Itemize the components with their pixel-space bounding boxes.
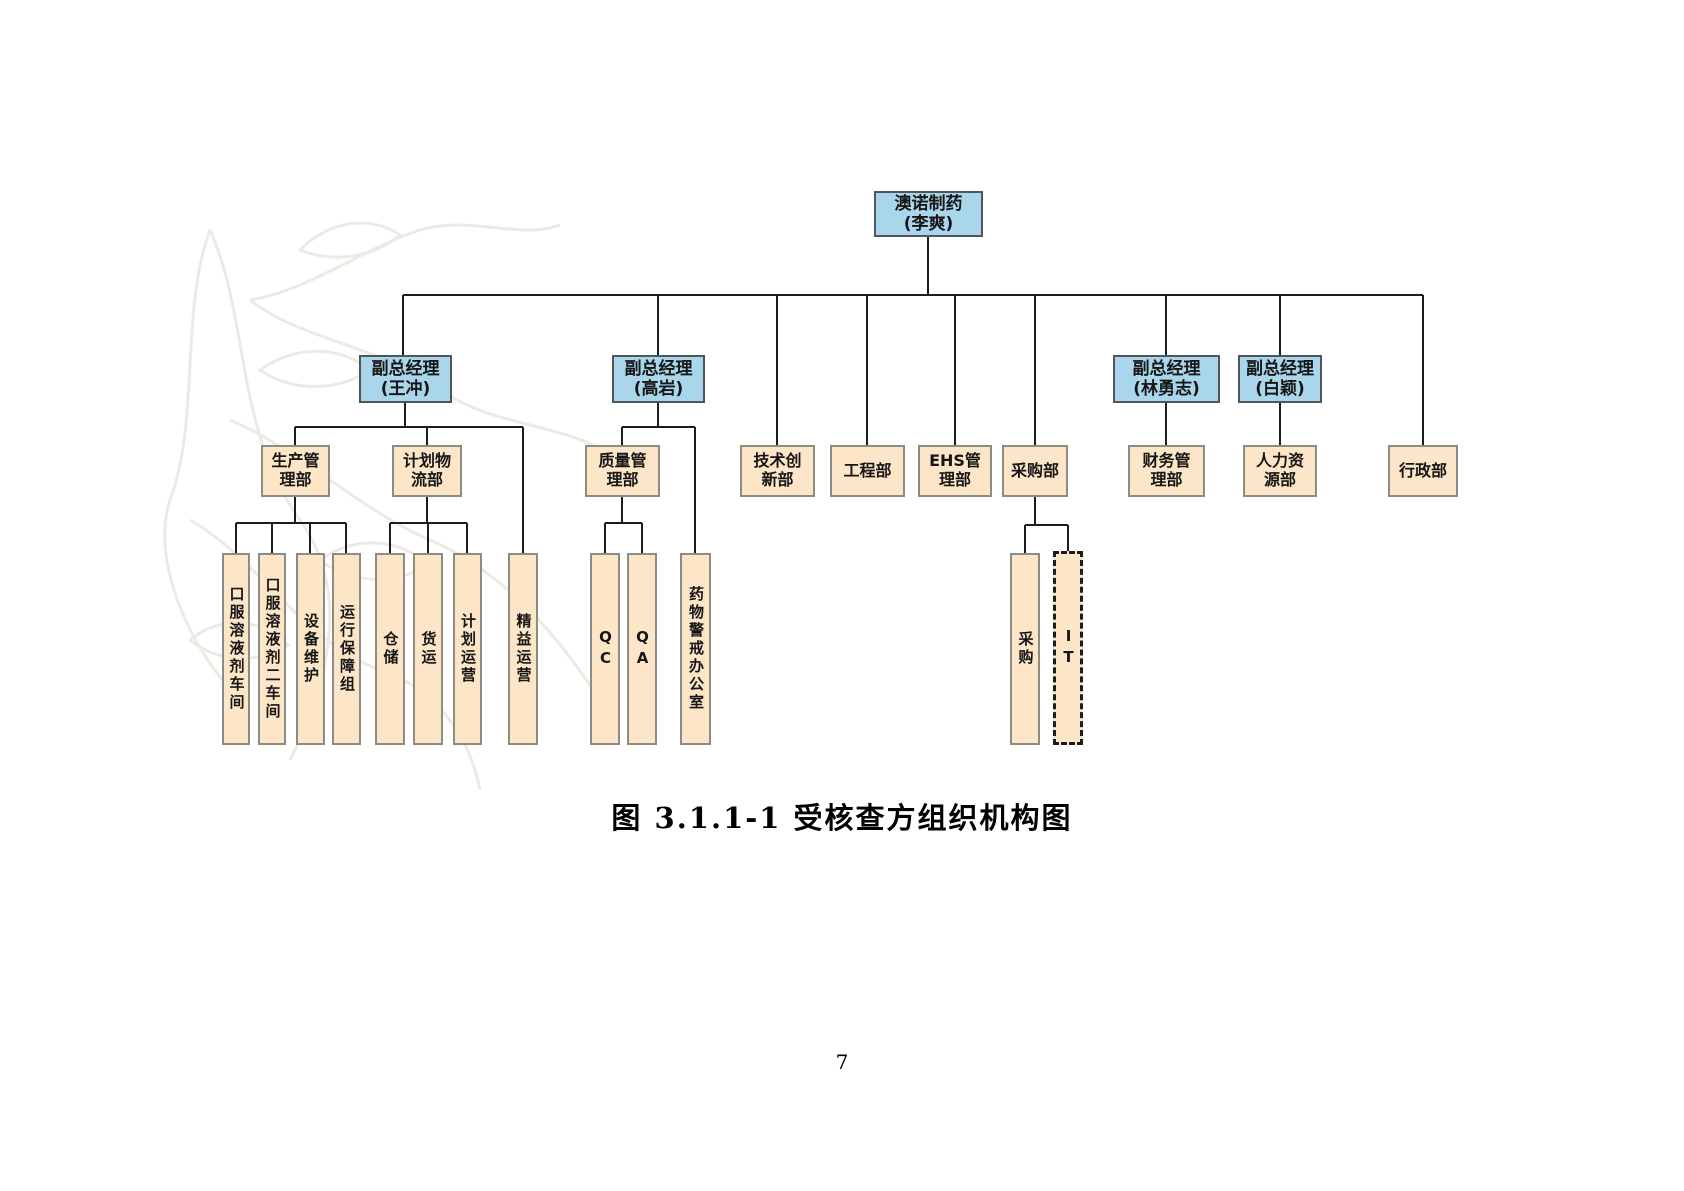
org-node-label: 财务管 理部 — [1142, 452, 1190, 490]
org-node-production-mgmt-dept: 生产管 理部 — [261, 445, 330, 497]
org-node-label: 副总经理 (白颖) — [1246, 359, 1314, 399]
org-node-warehousing: 仓储 — [375, 553, 405, 745]
org-node-label: 设备维护 — [303, 613, 318, 685]
org-node-it: IT — [1053, 551, 1083, 745]
page-number: 7 — [0, 1050, 1684, 1074]
org-node-label: 副总经理 (高岩) — [625, 359, 693, 399]
org-node-label: QA — [635, 628, 650, 670]
org-node-label: 计划物 流部 — [403, 452, 451, 490]
org-node-label: 口服溶液剂二车间 — [265, 577, 280, 721]
org-node-ehs-mgmt-dept: EHS管 理部 — [918, 445, 992, 497]
org-node-label: 技术创 新部 — [753, 452, 801, 490]
org-node-oral-solution-workshop-1: 口服溶液剂车间 — [222, 553, 250, 745]
org-node-label: 质量管 理部 — [598, 452, 646, 490]
org-node-label: 采购 — [1018, 631, 1033, 667]
org-node-vp-linyongzhi: 副总经理 (林勇志) — [1113, 355, 1220, 403]
org-node-equipment-maintenance: 设备维护 — [296, 553, 325, 745]
org-node-hr-dept: 人力资 源部 — [1243, 445, 1317, 497]
org-node-label: 副总经理 (林勇志) — [1133, 359, 1201, 399]
org-node-root-aonuo-pharma: 澳诺制药 (李爽) — [874, 191, 983, 237]
connector-lines — [0, 0, 1684, 1191]
org-node-label: IT — [1061, 627, 1076, 669]
org-node-vp-baiying: 副总经理 (白颖) — [1238, 355, 1322, 403]
org-node-admin-dept: 行政部 — [1388, 445, 1458, 497]
org-node-label: 口服溶液剂车间 — [229, 586, 244, 712]
org-node-vp-gaoyan: 副总经理 (高岩) — [612, 355, 705, 403]
org-node-finance-mgmt-dept: 财务管 理部 — [1128, 445, 1205, 497]
org-node-label: 澳诺制药 (李爽) — [895, 194, 963, 234]
org-chart: 澳诺制药 (李爽)副总经理 (王冲)副总经理 (高岩)副总经理 (林勇志)副总经… — [0, 0, 1684, 1191]
org-node-purchasing: 采购 — [1010, 553, 1040, 745]
org-node-label: EHS管 理部 — [929, 452, 981, 490]
org-node-oral-solution-workshop-2: 口服溶液剂二车间 — [258, 553, 286, 745]
org-node-qc: QC — [590, 553, 620, 745]
document-page: 澳诺制药 (李爽)副总经理 (王冲)副总经理 (高岩)副总经理 (林勇志)副总经… — [0, 0, 1684, 1191]
org-node-label: 工程部 — [843, 462, 891, 481]
org-node-label: 生产管 理部 — [271, 452, 319, 490]
org-node-planning-logistics-dept: 计划物 流部 — [392, 445, 462, 497]
org-node-label: 运行保障组 — [339, 604, 354, 694]
org-node-operation-support-group: 运行保障组 — [332, 553, 361, 745]
org-node-label: 人力资 源部 — [1256, 452, 1304, 490]
org-node-tech-innovation-dept: 技术创 新部 — [740, 445, 815, 497]
org-node-label: QC — [598, 628, 613, 670]
org-node-vp-wangchong: 副总经理 (王冲) — [359, 355, 452, 403]
org-node-label: 采购部 — [1011, 462, 1059, 481]
org-node-qa: QA — [627, 553, 657, 745]
org-node-label: 药物警戒办公室 — [688, 586, 703, 712]
org-node-label: 精益运营 — [516, 613, 531, 685]
org-node-engineering-dept: 工程部 — [830, 445, 905, 497]
org-node-label: 行政部 — [1399, 462, 1447, 481]
org-node-freight: 货运 — [413, 553, 443, 745]
org-node-label: 副总经理 (王冲) — [372, 359, 440, 399]
org-node-planning-operations: 计划运营 — [453, 553, 482, 745]
org-node-quality-mgmt-dept: 质量管 理部 — [585, 445, 660, 497]
org-node-pharmacovigilance-office: 药物警戒办公室 — [680, 553, 711, 745]
org-node-lean-operations: 精益运营 — [508, 553, 538, 745]
org-node-procurement-dept: 采购部 — [1002, 445, 1068, 497]
org-node-label: 计划运营 — [460, 613, 475, 685]
org-node-label: 货运 — [421, 631, 436, 667]
org-node-label: 仓储 — [383, 631, 398, 667]
figure-caption: 图 3.1.1-1 受核查方组织机构图 — [0, 795, 1684, 837]
